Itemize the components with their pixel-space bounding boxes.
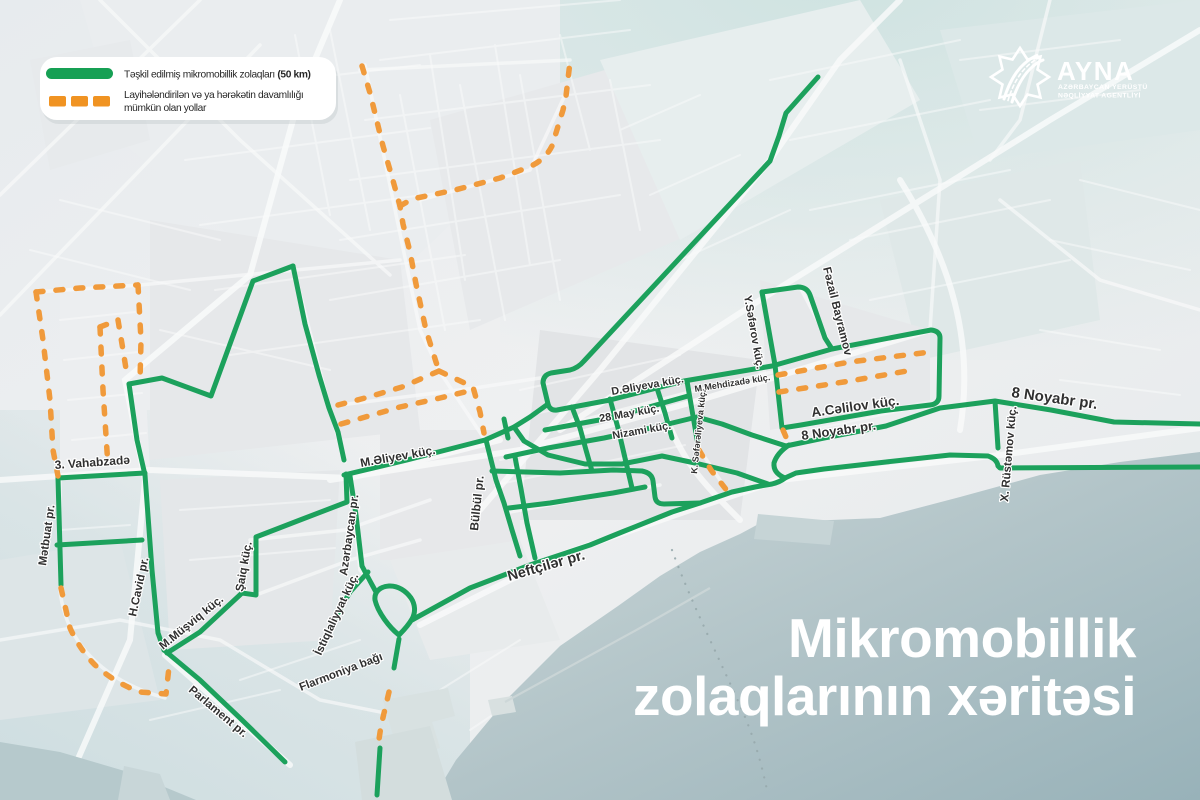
svg-text:mümkün olan yollar: mümkün olan yollar xyxy=(124,103,207,114)
svg-text:Mikromobillik: Mikromobillik xyxy=(788,607,1137,669)
svg-text:Təşkil edilmiş mikromobillik z: Təşkil edilmiş mikromobillik zolaqları (… xyxy=(124,70,311,81)
svg-text:zolaqlarının xəritəsi: zolaqlarının xəritəsi xyxy=(633,665,1136,727)
svg-text:Layihələndirilən və ya hərəkət: Layihələndirilən və ya hərəkətin davamlı… xyxy=(124,90,303,101)
svg-text:AZƏRBAYCAN YERÜSTÜ: AZƏRBAYCAN YERÜSTÜ xyxy=(1058,82,1148,91)
svg-text:NƏQLİYYAT AGENTLİYİ: NƏQLİYYAT AGENTLİYİ xyxy=(1058,92,1141,100)
svg-text:AYNA: AYNA xyxy=(1057,56,1134,86)
